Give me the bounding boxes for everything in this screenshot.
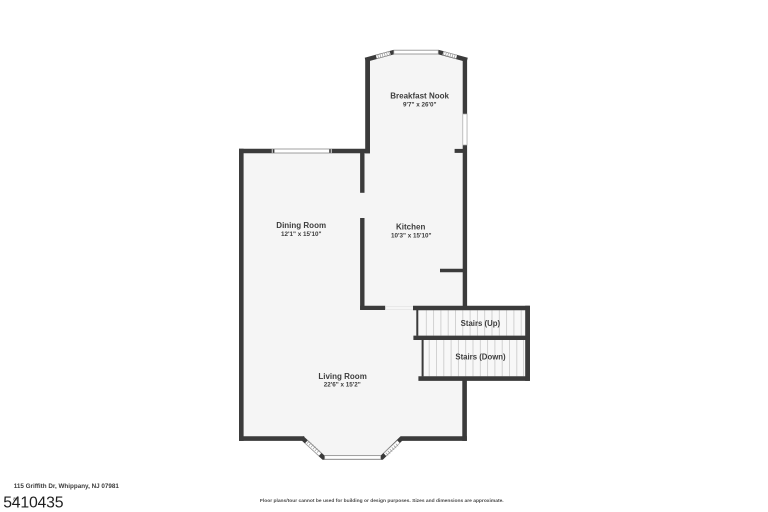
svg-text:Kitchen: Kitchen [396,223,425,232]
svg-text:Living Room: Living Room [318,372,366,381]
svg-text:5410435: 5410435 [3,494,64,511]
svg-text:Floor plans/tour cannot be use: Floor plans/tour cannot be used for buil… [260,498,504,504]
svg-text:115 Griffith Dr, Whippany, NJ: 115 Griffith Dr, Whippany, NJ 07981 [14,483,120,490]
svg-text:9'7" x 26'0": 9'7" x 26'0" [403,101,436,108]
svg-text:22'6" x 15'2": 22'6" x 15'2" [324,381,361,388]
svg-text:12'1" x 15'10": 12'1" x 15'10" [281,231,321,238]
svg-text:Stairs (Up): Stairs (Up) [461,319,501,328]
svg-text:10'3" x 15'10": 10'3" x 15'10" [391,233,431,240]
svg-text:Dining Room: Dining Room [276,221,326,230]
svg-text:Breakfast Nook: Breakfast Nook [390,91,449,100]
svg-text:Stairs (Down): Stairs (Down) [455,353,506,362]
